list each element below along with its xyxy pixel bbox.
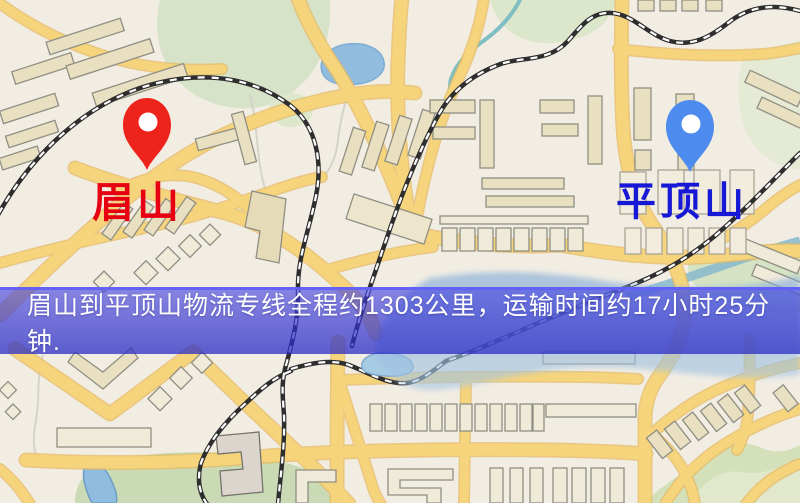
logistics-route-map: 眉山 平顶山 眉山到平顶山物流专线全程约1303公里，运输时间约17小时25分钟…	[0, 0, 800, 503]
origin-city-label: 眉山	[92, 182, 182, 224]
route-info-text: 眉山到平顶山物流专线全程约1303公里，运输时间约17小时25分钟.	[0, 286, 800, 358]
destination-pin-icon[interactable]	[660, 92, 720, 174]
map-canvas[interactable]	[0, 0, 800, 503]
origin-pin-icon[interactable]	[117, 90, 177, 172]
destination-city-label: 平顶山	[616, 182, 748, 222]
route-info-banner: 眉山到平顶山物流专线全程约1303公里，运输时间约17小时25分钟.	[0, 287, 800, 354]
